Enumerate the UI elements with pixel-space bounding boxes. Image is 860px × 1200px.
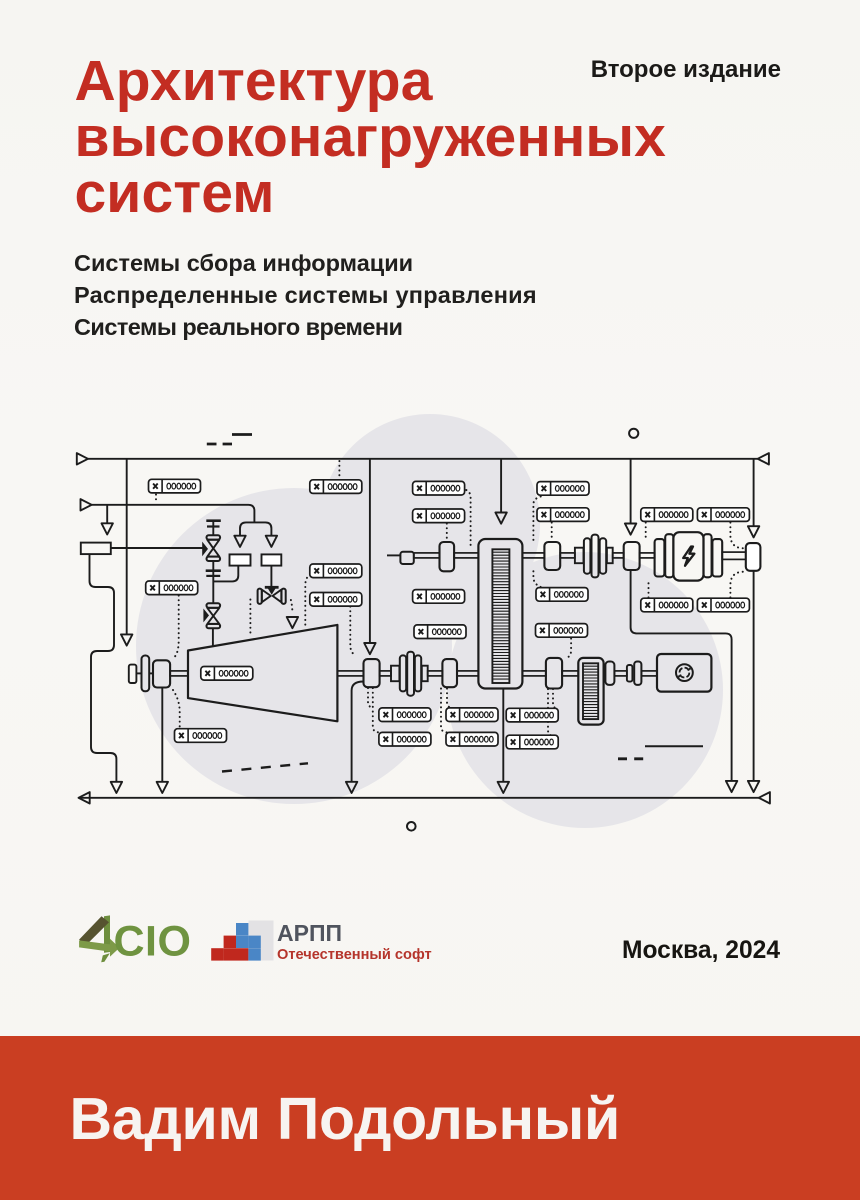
svg-text:АРПП: АРПП: [277, 920, 342, 946]
svg-text:CIO: CIO: [114, 918, 192, 966]
svg-text:Отечественный софт: Отечественный софт: [277, 947, 432, 963]
